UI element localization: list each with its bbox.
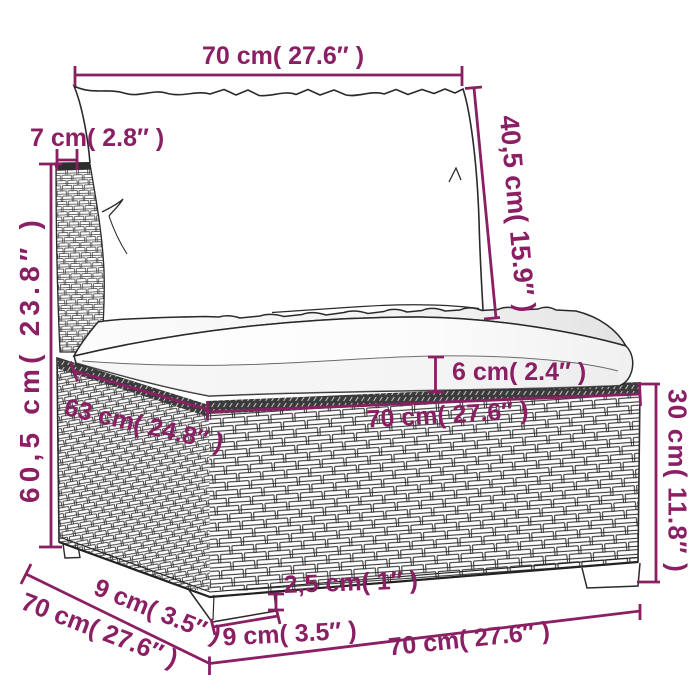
svg-text:30 cm( 11.8″ ): 30 cm( 11.8″ ) — [663, 389, 693, 573]
svg-text:7 cm( 2.8″ ): 7 cm( 2.8″ ) — [30, 124, 164, 152]
svg-text:60,5 cm( 23.8″ ): 60,5 cm( 23.8″ ) — [14, 215, 45, 503]
svg-text:70 cm( 27.6″ ): 70 cm( 27.6″ ) — [202, 42, 364, 70]
svg-text:6 cm( 2.4″ ): 6 cm( 2.4″ ) — [452, 358, 586, 386]
svg-text:9 cm( 3.5″ ): 9 cm( 3.5″ ) — [222, 617, 358, 652]
svg-text:2,5 cm( 1″ ): 2,5 cm( 1″ ) — [283, 566, 418, 599]
svg-text:40,5 cm( 15.9″ ): 40,5 cm( 15.9″ ) — [494, 114, 541, 313]
svg-text:70 cm( 27.6″ ): 70 cm( 27.6″ ) — [387, 617, 551, 662]
